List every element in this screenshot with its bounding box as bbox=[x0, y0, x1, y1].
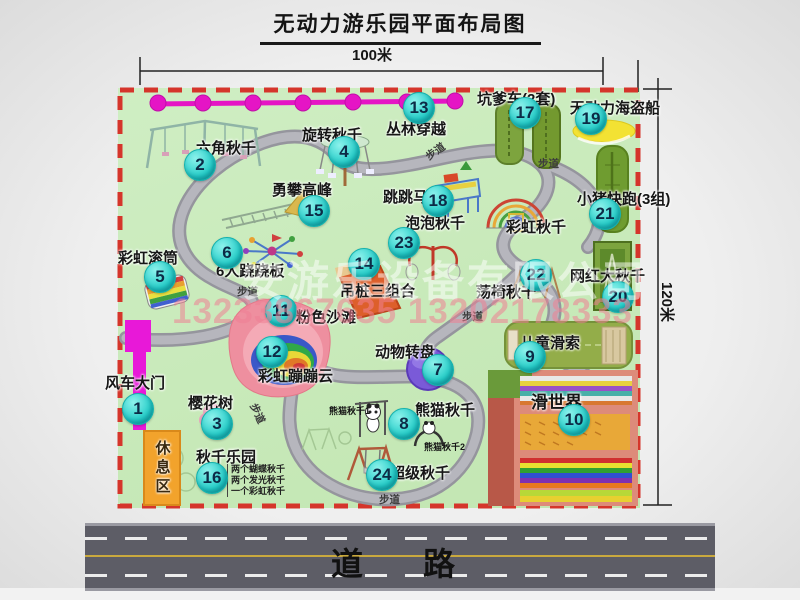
badge-18: 18 bbox=[422, 185, 454, 217]
walkway-label: 步道 bbox=[538, 156, 559, 171]
badge-7: 7 bbox=[422, 354, 454, 386]
badge-14: 14 bbox=[348, 248, 380, 280]
label-panda-swing-2: 熊猫秋千2 bbox=[424, 440, 465, 453]
badge-15: 15 bbox=[298, 195, 330, 227]
road: 道 路 bbox=[85, 523, 715, 591]
label-windmill-gate: 风车大门 bbox=[105, 372, 165, 393]
label-super-swing: 超级秋千 bbox=[390, 462, 450, 483]
badge-3: 3 bbox=[201, 408, 233, 440]
page-title: 无动力游乐园平面布局图 bbox=[0, 8, 800, 45]
badge-19: 19 bbox=[575, 103, 607, 135]
badge-13: 13 bbox=[403, 92, 435, 124]
badge-20: 20 bbox=[602, 281, 634, 313]
badge-2: 2 bbox=[184, 149, 216, 181]
swing-park-notes: 两个蝴蝶秋千 两个发光秋千 一个彩虹秋千 bbox=[227, 464, 285, 497]
badge-23: 23 bbox=[388, 227, 420, 259]
dimension-width-label: 100米 bbox=[352, 44, 392, 65]
page-title-text: 无动力游乐园平面布局图 bbox=[260, 8, 541, 45]
badge-9: 9 bbox=[514, 341, 546, 373]
park-layout-plan: 无动力游乐园平面布局图 100米 120米 bbox=[0, 0, 800, 600]
walkway-label: 步道 bbox=[237, 284, 258, 299]
swing-park-note: 两个发光秋千 bbox=[231, 475, 285, 486]
badge-5: 5 bbox=[144, 261, 176, 293]
badge-12: 12 bbox=[256, 336, 288, 368]
badge-17: 17 bbox=[509, 97, 541, 129]
walkway-label: 步道 bbox=[462, 309, 483, 324]
label-pink-beach: 粉色沙滩 bbox=[296, 306, 356, 327]
rest-area: 休息区 bbox=[143, 430, 181, 506]
label-hanging-pile: 吊桩三组合 bbox=[340, 280, 415, 301]
label-bounce-cloud: 彩虹蹦蹦云 bbox=[258, 365, 333, 386]
label-panda-swing-1: 熊猫秋千1 bbox=[329, 404, 370, 417]
rest-area-label: 休息区 bbox=[152, 440, 173, 497]
label-panda-swing: 熊猫秋千 bbox=[415, 399, 475, 420]
dimension-height-label: 120米 bbox=[657, 282, 678, 322]
badge-21: 21 bbox=[589, 198, 621, 230]
badge-24: 24 bbox=[366, 459, 398, 491]
label-rainbow-swing: 彩虹秋千 bbox=[506, 216, 566, 237]
label-big-swing: 网红大秋千 bbox=[570, 265, 645, 286]
badge-4: 4 bbox=[328, 136, 360, 168]
swing-park-note: 一个彩虹秋千 bbox=[231, 486, 285, 497]
badge-6: 6 bbox=[211, 237, 243, 269]
walkway-label: 步道 bbox=[379, 492, 400, 507]
road-label: 道 路 bbox=[85, 539, 715, 585]
badge-10: 10 bbox=[558, 404, 590, 436]
badge-11: 11 bbox=[265, 295, 297, 327]
badge-8: 8 bbox=[388, 408, 420, 440]
badge-16: 16 bbox=[196, 462, 228, 494]
swing-park-note: 两个蝴蝶秋千 bbox=[231, 464, 285, 475]
badge-22: 22 bbox=[520, 259, 552, 291]
badge-1: 1 bbox=[122, 393, 154, 425]
label-jump-horse: 跳跳马 bbox=[383, 186, 428, 207]
